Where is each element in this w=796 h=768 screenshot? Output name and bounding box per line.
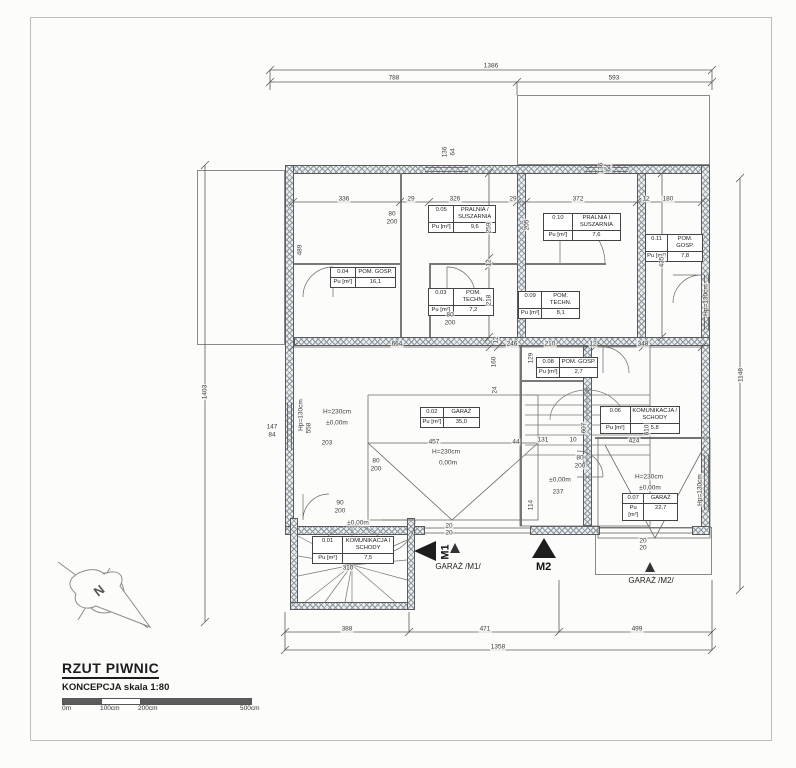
- room-number: 0.09: [519, 292, 542, 308]
- room-number: 0.05: [429, 206, 454, 222]
- title-block: RZUT PIWNIC KONCEPCJA skala 1:80: [62, 660, 282, 693]
- room-label-0-10: 0.10PRALNIA I SUSZARNIA Pu [m²]7,6: [543, 213, 621, 241]
- window-right-lines: [705, 275, 709, 510]
- m1-caption: GARAŻ /M1/: [435, 562, 480, 571]
- room-name: KOMUNIKACJA I SCHODY: [343, 537, 393, 553]
- room-area: 16,1: [356, 278, 395, 287]
- room-name: GARAŻ: [644, 494, 677, 503]
- room-label-0-03: 0.03POM. TECHN. Pu [m²]7,2: [428, 288, 494, 316]
- dim-line-top-total: [266, 66, 716, 74]
- room-number: 0.08: [537, 358, 560, 367]
- scale-bar-segments: [62, 698, 252, 705]
- room-area: 35,0: [444, 418, 479, 427]
- area-label: Pu [m²]: [537, 368, 560, 377]
- room-area: 7,6: [573, 231, 620, 240]
- room-label-0-07: 0.07GARAŻ Pu [m²]22,7: [622, 493, 678, 521]
- room-name: KOMUNIKACJA / SCHODY: [631, 407, 679, 423]
- dim-line-bottom-total: [281, 646, 716, 654]
- room-area: 7,5: [343, 554, 393, 563]
- room-label-0-02: 0.02GARAŻ Pu [m²]35,0: [420, 407, 480, 428]
- dim-line-bottom-row: [281, 580, 716, 650]
- dim-line-top-row: [266, 70, 716, 95]
- area-label: Pu [m²]: [313, 554, 343, 563]
- room-name: POM. GOSP.: [356, 268, 395, 277]
- area-label: Pu [m²]: [601, 424, 631, 433]
- m1-arrow-icon: [414, 541, 436, 561]
- area-label: Pu [m²]: [429, 306, 454, 315]
- scale-segment-dark-2: [141, 699, 251, 704]
- room-label-0-05: 0.05PRALNIA / SUSZARNIA Pu [m²]9,6: [428, 205, 496, 233]
- scale-label-200: 200cm: [138, 705, 158, 712]
- dim-line-interior-top: [289, 198, 706, 206]
- scale-label-100: 100cm: [100, 705, 120, 712]
- area-label: Pu [m²]: [646, 252, 668, 261]
- window-left-lines: [288, 403, 292, 450]
- room-area: 22,7: [644, 504, 677, 520]
- garage1-ramp-v: [368, 443, 538, 520]
- room-label-0-11: 0.11POM. GOSP. Pu [m²]7,8: [645, 234, 703, 262]
- garage1-ramp-outline: [368, 443, 538, 520]
- room-number: 0.06: [601, 407, 631, 423]
- scale-label-0: 0m: [62, 705, 71, 712]
- room-number: 0.07: [623, 494, 644, 503]
- room-label-0-01: 0.01KOMUNIKACJA I SCHODY Pu [m²]7,5: [312, 536, 394, 564]
- area-label: Pu [m²]: [623, 504, 644, 520]
- room-name: PRALNIA I SUSZARNIA: [573, 214, 620, 230]
- m2-arrow-icon: [532, 538, 556, 558]
- page-subtitle: KONCEPCJA skala 1:80: [62, 682, 282, 693]
- room-name: POM. TECHN.: [542, 292, 579, 308]
- m1-label: M1: [440, 544, 452, 559]
- room-area: 2,7: [560, 368, 597, 377]
- scale-segment-light: [101, 699, 141, 704]
- area-label: Pu [m²]: [421, 418, 444, 427]
- garage2-ramp-v: [605, 445, 705, 538]
- room-number: 0.03: [429, 289, 454, 305]
- scale-label-500: 500cm: [240, 705, 260, 712]
- room-name: PRALNIA / SUSZARNIA: [454, 206, 495, 222]
- linework-layer: N: [0, 0, 796, 768]
- room-name: POM. TECHN.: [454, 289, 493, 305]
- area-label: Pu [m²]: [331, 278, 356, 287]
- m2-caption: GARAŻ /M2/: [628, 576, 673, 585]
- area-label: Pu [m²]: [519, 309, 542, 318]
- scale-segment-dark-1: [63, 699, 101, 704]
- page-title: RZUT PIWNIC: [62, 660, 159, 679]
- room-label-0-04: 0.04POM. GOSP. Pu [m²]16,1: [330, 267, 396, 288]
- area-label: Pu [m²]: [544, 231, 573, 240]
- m2-label: M2: [536, 561, 551, 573]
- room-name: GARAŻ: [444, 408, 479, 417]
- dim-line-interior-mid: [289, 343, 706, 351]
- garage2-ramp-outline: [598, 438, 710, 538]
- room-area: 7,2: [454, 306, 493, 315]
- dim-line-right-total: [736, 174, 744, 594]
- room-number: 0.04: [331, 268, 356, 277]
- dim-line-left-total: [201, 161, 209, 626]
- floor-plan-page: N 0.01KOMUNIKACJA I SCHODY Pu [m²]7,5 0.…: [0, 0, 796, 768]
- scale-bar: 0m 100cm 200cm 500cm: [62, 698, 252, 712]
- m2-caption-triangle-icon: [645, 562, 655, 572]
- room-name: POM. GOSP.: [668, 235, 702, 251]
- room-number: 0.11: [646, 235, 668, 251]
- room-number: 0.02: [421, 408, 444, 417]
- room-number: 0.10: [544, 214, 573, 230]
- room-label-0-08: 0.08POM. GOSP. Pu [m²]2,7: [536, 357, 598, 378]
- room-area: 8,1: [542, 309, 579, 318]
- room-area: 9,6: [454, 223, 495, 232]
- window-top-lines: [425, 168, 628, 172]
- room-number: 0.01: [313, 537, 343, 553]
- room-area: 5,8: [631, 424, 679, 433]
- room-label-0-06: 0.06KOMUNIKACJA / SCHODY Pu [m²]5,8: [600, 406, 680, 434]
- room-name: POM. GOSP.: [560, 358, 597, 367]
- room-label-0-09: 0.09POM. TECHN. Pu [m²]8,1: [518, 291, 580, 319]
- room-area: 7,8: [668, 252, 702, 261]
- area-label: Pu [m²]: [429, 223, 454, 232]
